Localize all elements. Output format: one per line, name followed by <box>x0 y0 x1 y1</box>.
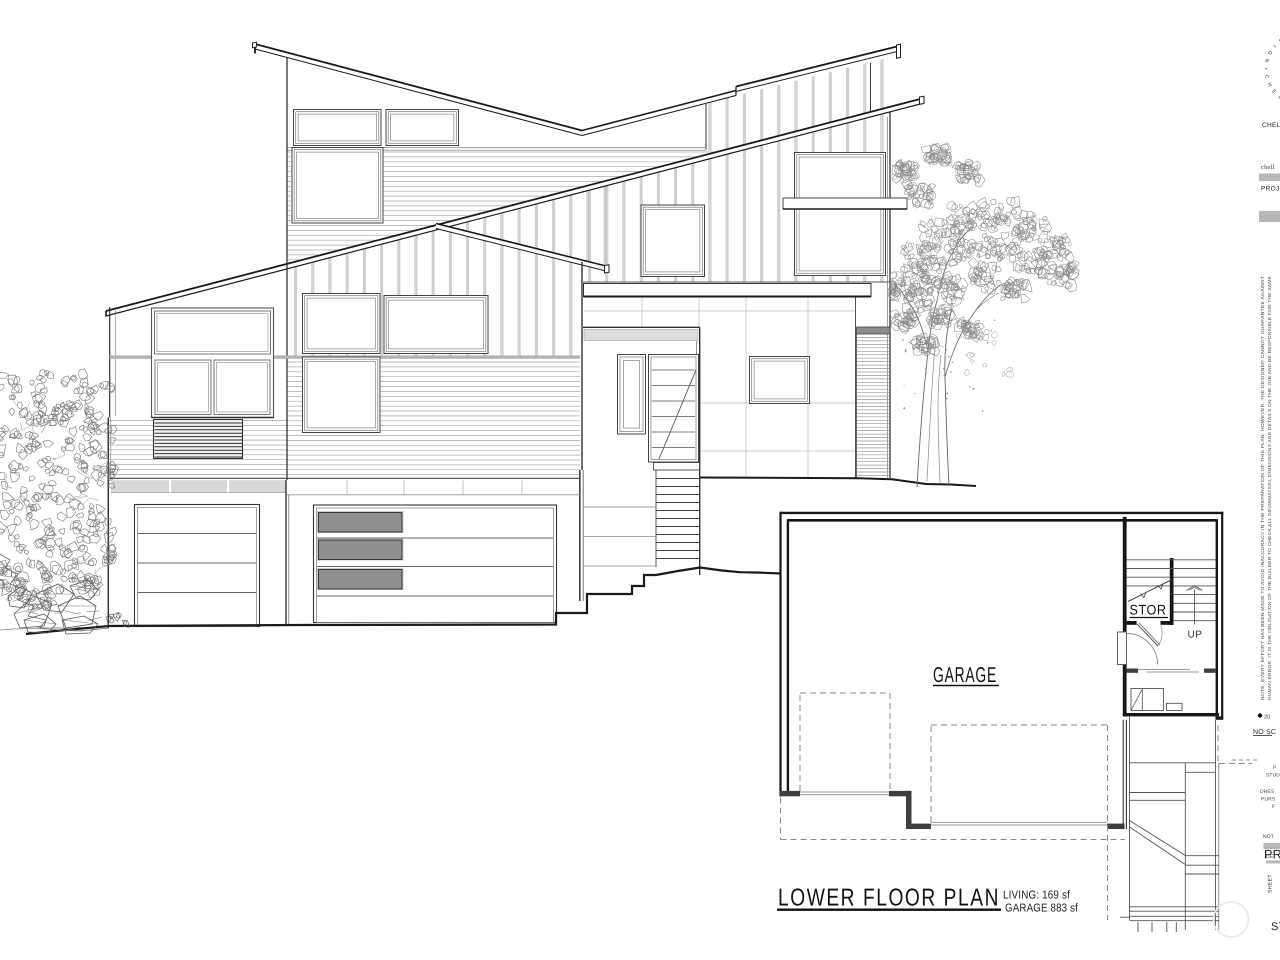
svg-text:F: F <box>1272 804 1275 810</box>
svg-text:NOTE: EVERY EFFORT HAS BEEN MA: NOTE: EVERY EFFORT HAS BEEN MADE TO AVOI… <box>1260 276 1265 700</box>
svg-text:LOWER FLOOR PLAN: LOWER FLOOR PLAN <box>778 885 1000 912</box>
svg-text:UP: UP <box>1188 630 1203 641</box>
svg-text:STUD: STUD <box>1266 773 1280 779</box>
svg-text:chell: chell <box>1261 164 1275 171</box>
svg-text:P: P <box>1273 765 1277 771</box>
svg-text:STOR: STOR <box>1130 602 1167 618</box>
svg-text:NO SC: NO SC <box>1253 729 1276 736</box>
svg-text:LIVING: 169 sf: LIVING: 169 sf <box>1003 890 1071 902</box>
svg-text:PROJ: PROJ <box>1261 186 1280 193</box>
svg-text:HUMAN ERROR. IT IS THE OBLIGAT: HUMAN ERROR. IT IS THE OBLIGATION OF THE… <box>1267 276 1272 700</box>
svg-text:20: 20 <box>1264 715 1270 721</box>
svg-text:DRES: DRES <box>1260 789 1275 795</box>
svg-text:CHELL: CHELL <box>1262 122 1280 129</box>
svg-text:PURS: PURS <box>1261 797 1276 803</box>
svg-text:•: • <box>1262 68 1268 70</box>
svg-text:ST: ST <box>1271 921 1280 933</box>
svg-text:PR: PR <box>1264 848 1280 862</box>
svg-text:GARAGE: GARAGE <box>933 663 997 687</box>
svg-text:NOT: NOT <box>1263 834 1274 840</box>
svg-text:GARAGE 883 sf: GARAGE 883 sf <box>1005 903 1078 915</box>
svg-text:SHEET: SHEET <box>1268 874 1274 893</box>
